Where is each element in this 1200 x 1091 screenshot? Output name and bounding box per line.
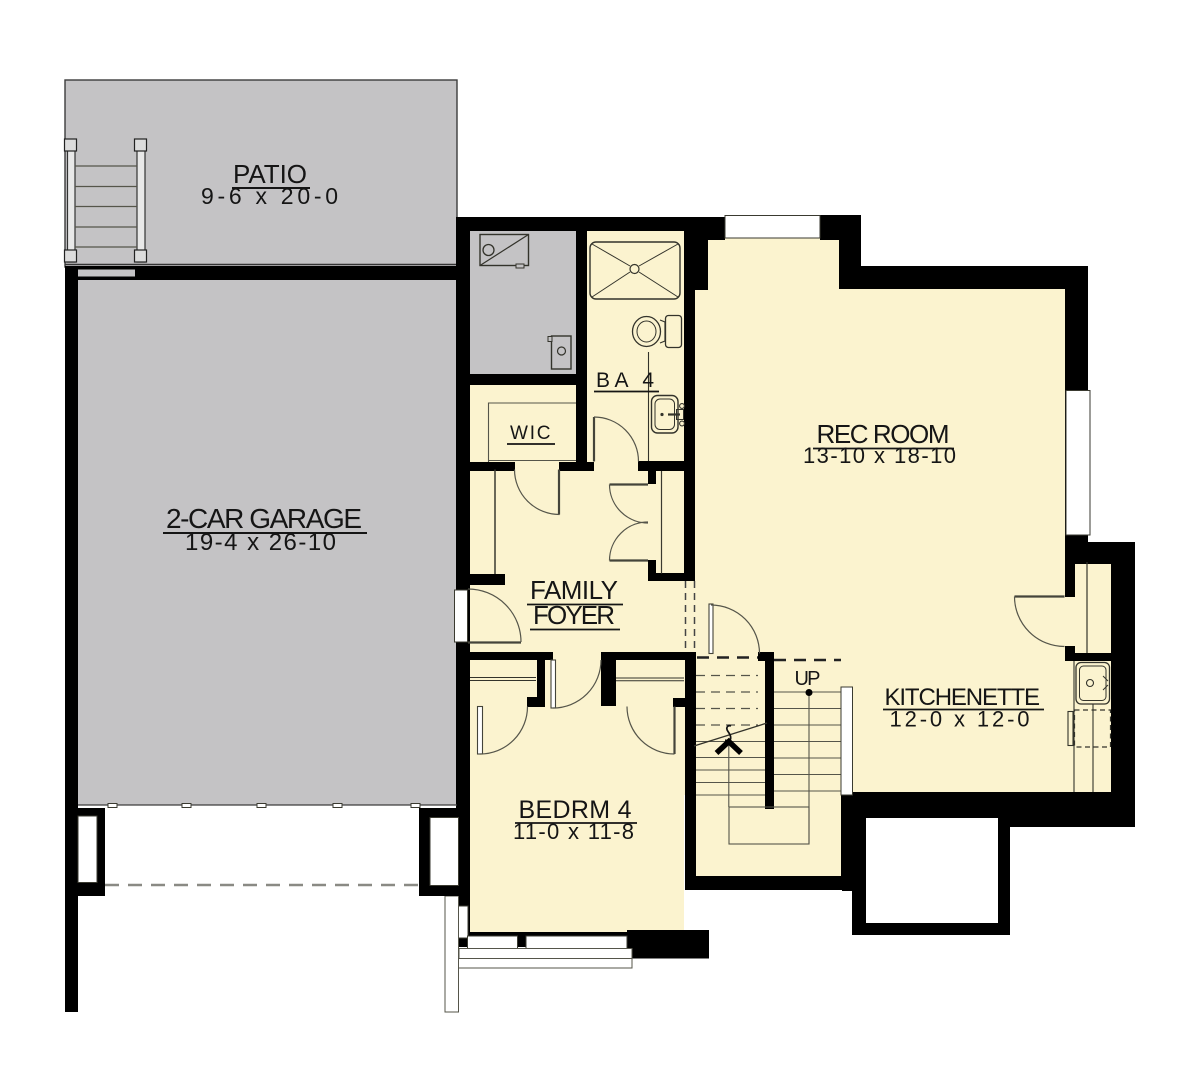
svg-text:11-0 x 11-8: 11-0 x 11-8 (513, 819, 635, 844)
svg-text:WIC: WIC (510, 423, 552, 444)
svg-text:13-10 x 18-10: 13-10 x 18-10 (803, 443, 957, 468)
svg-text:UP: UP (795, 668, 822, 690)
svg-text:12-0 x 12-0: 12-0 x 12-0 (890, 707, 1031, 732)
svg-text:19-4 x 26-10: 19-4 x 26-10 (185, 529, 337, 556)
svg-text:BA 4: BA 4 (596, 369, 656, 392)
svg-text:FOYER: FOYER (533, 600, 617, 630)
svg-text:9-6 x 20-0: 9-6 x 20-0 (201, 183, 339, 209)
